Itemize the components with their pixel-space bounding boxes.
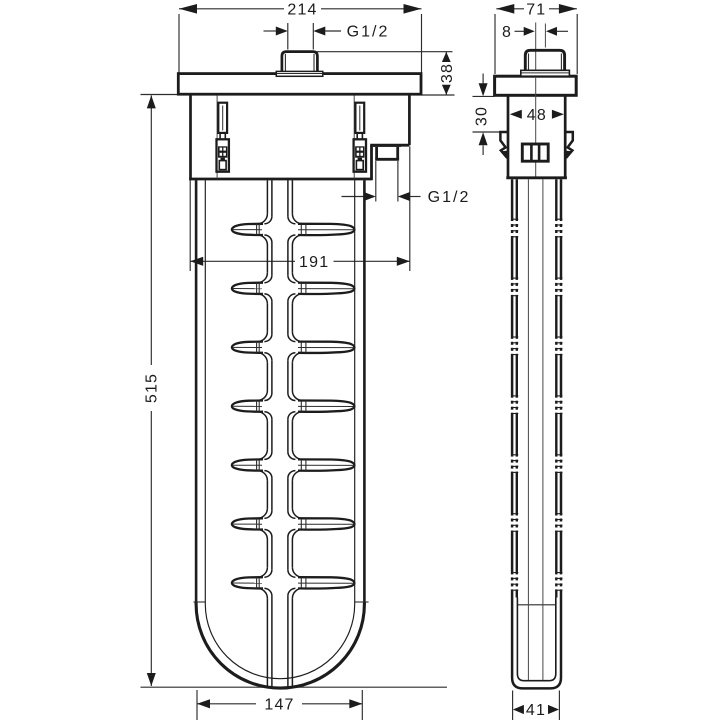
svg-text:147: 147 — [264, 696, 294, 713]
svg-text:G1/2: G1/2 — [347, 24, 390, 41]
svg-text:41: 41 — [526, 702, 546, 719]
svg-text:214: 214 — [287, 1, 317, 18]
svg-text:191: 191 — [299, 254, 329, 271]
svg-text:G1/2: G1/2 — [428, 189, 471, 206]
svg-text:48: 48 — [527, 107, 547, 124]
svg-text:71: 71 — [526, 1, 546, 18]
svg-text:515: 515 — [144, 373, 161, 403]
svg-text:30: 30 — [473, 106, 490, 126]
svg-text:8: 8 — [502, 24, 512, 41]
svg-text:38: 38 — [439, 63, 456, 83]
